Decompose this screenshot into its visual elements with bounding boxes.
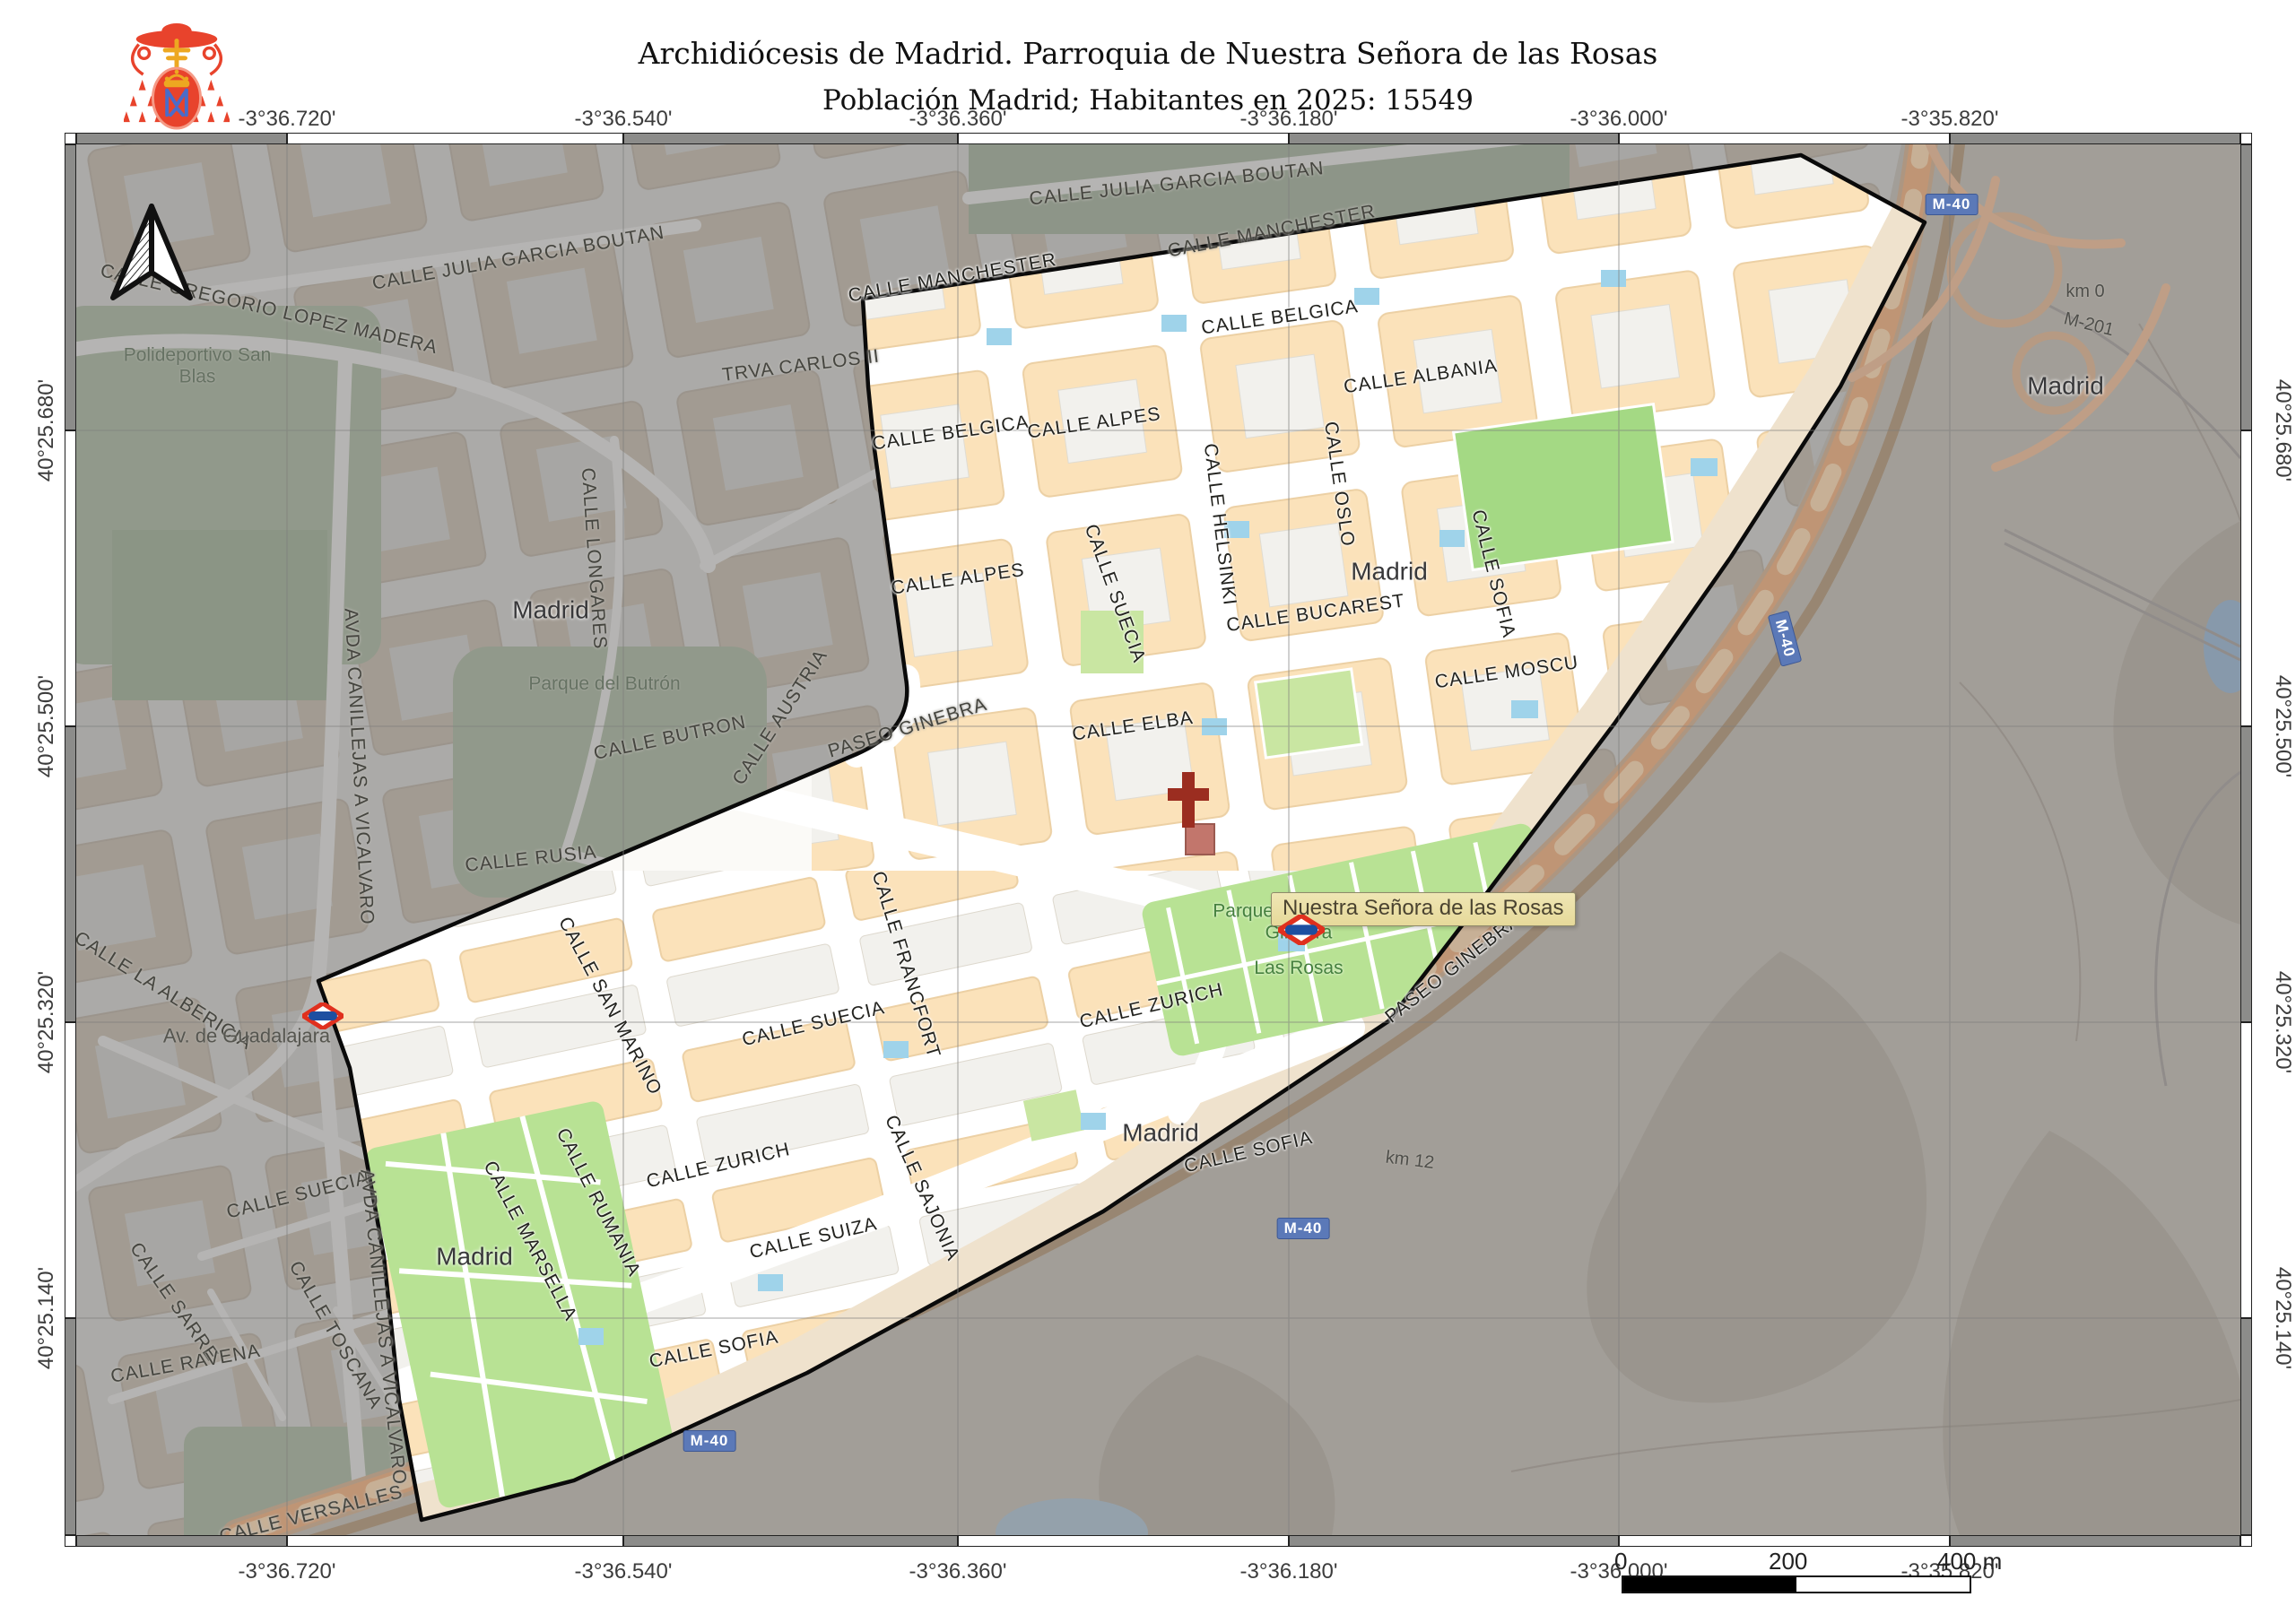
frame-segment [65, 1535, 76, 1547]
frame-segment [65, 133, 76, 144]
frame-segment [1289, 1535, 1619, 1547]
frame-segment [623, 133, 958, 144]
frame-segment [2240, 726, 2252, 1022]
frame-segment [1289, 133, 1619, 144]
scale-label-200: 200 [1769, 1548, 1807, 1575]
church-label-text: Nuestra Señora de las Rosas [1283, 896, 1564, 920]
metro-icon [1278, 915, 1325, 945]
scale-bar [1622, 1575, 1971, 1593]
longitude-label: -3°36.720' [239, 1559, 336, 1584]
frame-segment [2240, 1535, 2252, 1547]
frame-segment [65, 1318, 76, 1535]
longitude-label: -3°36.180' [1240, 1559, 1338, 1584]
latitude-label: 40°25.320' [2270, 971, 2295, 1073]
latitude-label: 40°25.320' [34, 971, 59, 1073]
frame-segment [76, 1535, 287, 1547]
longitude-label: -3°36.720' [239, 107, 336, 132]
longitude-label: -3°36.540' [575, 1559, 673, 1584]
frame-segment [1619, 133, 1950, 144]
longitude-label: -3°36.360' [909, 1559, 1007, 1584]
frame-segment [1950, 133, 2240, 144]
latitude-label: 40°25.680' [34, 379, 59, 482]
longitude-label: -3°35.820' [1901, 107, 1999, 132]
frame-segment [958, 133, 1289, 144]
page-title: Archidiócesis de Madrid. Parroquia de Nu… [0, 36, 2296, 71]
frame-segment [623, 1535, 958, 1547]
longitude-label: -3°36.540' [575, 107, 673, 132]
road-shield-m40: M-40 [683, 1430, 736, 1452]
frame-segment [2240, 144, 2252, 430]
frame-segment [65, 430, 76, 726]
metro-icon [302, 1002, 344, 1029]
frame-segment [1950, 1535, 2240, 1547]
latitude-label: 40°25.140' [34, 1267, 59, 1369]
scale-label-400: 400 m [1937, 1548, 2002, 1575]
latitude-label: 40°25.680' [2270, 379, 2295, 482]
frame-segment [287, 133, 623, 144]
longitude-label: -3°36.180' [1240, 107, 1338, 132]
map-canvas: CALLE GREGORIO LOPEZ MADERACALLE JULIA G… [76, 144, 2240, 1535]
frame-segment [958, 1535, 1289, 1547]
frame-segment [2240, 133, 2252, 144]
scale-bar-black-segment [1623, 1577, 1796, 1592]
road-shield-m40: M-40 [1277, 1218, 1330, 1239]
frame-segment [1619, 1535, 1950, 1547]
frame-segment [2240, 430, 2252, 726]
frame-segment [65, 1022, 76, 1318]
latitude-label: 40°25.140' [2270, 1267, 2295, 1369]
longitude-label: -3°36.000' [1570, 107, 1668, 132]
frame-segment [65, 144, 76, 430]
latitude-label: 40°25.500' [2270, 675, 2295, 777]
longitude-label: -3°36.360' [909, 107, 1007, 132]
frame-segment [65, 726, 76, 1022]
road-shield-m40: M-40 [1926, 194, 1979, 215]
north-arrow-icon [109, 203, 194, 303]
archdiocese-coat-of-arms-icon [124, 16, 230, 131]
scale-label-0: 0 [1614, 1548, 1627, 1575]
map-page: { "header": { "title_line1": "Archidióce… [0, 0, 2296, 1623]
frame-segment [287, 1535, 623, 1547]
latitude-label: 40°25.500' [34, 675, 59, 777]
frame-segment [2240, 1022, 2252, 1318]
map-base-layers [76, 144, 2240, 1535]
frame-segment [2240, 1318, 2252, 1535]
frame-segment [76, 133, 287, 144]
